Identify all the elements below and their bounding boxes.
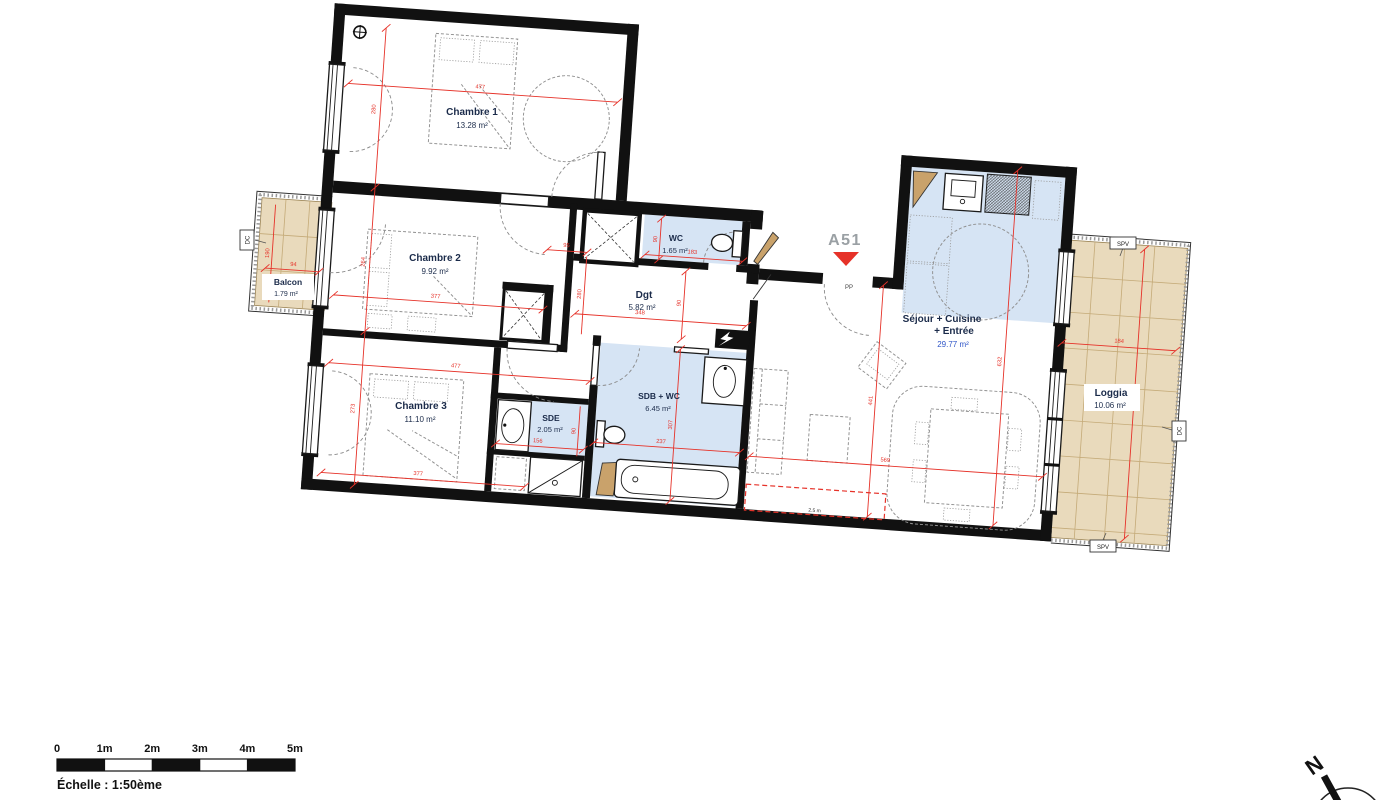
scale-tick-0: 0: [54, 743, 60, 755]
dim-sejour-h-left: 441: [868, 396, 875, 406]
dining-table: [909, 395, 1023, 525]
unit-label: A51: [828, 232, 862, 249]
sdb-bathtub: [614, 459, 740, 506]
dim-sde-h: 90: [571, 428, 577, 435]
dining-zone: [885, 384, 1042, 532]
compass-north-label: N: [1301, 751, 1328, 781]
area-sejour: 29.77 m²: [937, 340, 969, 349]
armchair: [858, 342, 906, 389]
area-chambre3: 11.10 m²: [405, 415, 436, 424]
dim-ch3-w-top: 477: [451, 363, 461, 370]
turning-zone-label: 2.5 m: [808, 508, 821, 515]
label-sejour-line2: + Entrée: [934, 326, 974, 337]
area-sdb: 6.45 m²: [645, 404, 671, 413]
dim-sejour-h-right: 632: [997, 357, 1004, 367]
svg-text:SPV: SPV: [1097, 545, 1109, 551]
circle-zone-ch1: [520, 73, 612, 165]
label-chambre2: Chambre 2: [409, 253, 461, 264]
door-chambre3: [504, 341, 558, 401]
dim-ch2-w: 377: [431, 294, 441, 301]
area-dgt: 5.82 m²: [628, 303, 655, 312]
door-chambre2: [497, 193, 549, 254]
label-sde: SDE: [542, 413, 560, 423]
compass-circle: [1312, 788, 1379, 800]
label-chambre1: Chambre 1: [446, 107, 498, 118]
dim-ch3-h: 273: [350, 404, 357, 414]
dim-ch1-h: 280: [371, 104, 378, 114]
closet: [501, 289, 546, 342]
svg-text:SPV: SPV: [1117, 242, 1129, 248]
survey-point-icon: [352, 25, 367, 40]
stove: [985, 174, 1032, 215]
label-sejour: Séjour + Cuisine: [903, 314, 982, 325]
dim-ch1-w: 477: [475, 84, 485, 91]
dim-sdb-w: 237: [656, 439, 666, 446]
scale-tick-2: 2m: [144, 743, 160, 755]
window-chambre1: [322, 61, 345, 154]
dim-wc-h: 90: [653, 236, 659, 243]
area-chambre2: 9.92 m²: [421, 267, 448, 276]
label-loggia: Loggia: [1095, 388, 1128, 399]
dim-balcon-w: 94: [290, 262, 298, 268]
scale-caption: Échelle : 1:50ème: [57, 777, 162, 792]
floorplan-canvas: 2.5 m 280 264 273 477 377 477 377 183 90…: [0, 0, 1379, 800]
entrance-door-label: PP: [845, 285, 853, 291]
bed-chambre2: [361, 229, 478, 334]
unit-marker: A51 PP: [828, 232, 862, 291]
label-sdb: SDB + WC: [638, 391, 680, 401]
label-chambre3: Chambre 3: [395, 401, 447, 412]
area-loggia: 10.06 m²: [1094, 401, 1126, 410]
dim-sejour-w: 569: [880, 457, 890, 464]
sde-shower: [528, 457, 582, 497]
dim-hall-w: 95: [563, 243, 570, 249]
scale-tick-3: 3m: [192, 743, 208, 755]
dim-loggia-w: 184: [1114, 338, 1125, 345]
door-chambre1: [552, 149, 605, 200]
area-sde: 2.05 m²: [537, 425, 563, 434]
dim-balcon-h: 190: [265, 248, 272, 258]
balcony-door-swing: [330, 221, 386, 277]
unit-arrow-icon: [833, 252, 859, 266]
coffee-table: [807, 414, 850, 463]
dim-dgt-h: 90: [677, 300, 683, 307]
scale-tick-5: 5m: [287, 743, 303, 755]
electrical-panel: [715, 329, 750, 350]
scale-tick-1: 1m: [97, 743, 113, 755]
kitchen-floor: [902, 167, 1066, 323]
window-chambre3: [301, 362, 325, 457]
floorplan-page: 2.5 m 280 264 273 477 377 477 377 183 90…: [0, 0, 1379, 800]
north-compass: N: [1301, 751, 1379, 800]
label-dgt: Dgt: [636, 290, 653, 301]
dim-hall-h: 280: [577, 289, 584, 299]
svg-text:DC: DC: [246, 235, 252, 244]
floor-plan: 2.5 m 280 264 273 477 377 477 377 183 90…: [236, 0, 1204, 551]
dim-sde-w: 156: [533, 438, 543, 445]
svg-text:DC: DC: [1178, 426, 1184, 435]
scale-tick-4: 4m: [239, 743, 255, 755]
area-wc: 1.65 m²: [662, 246, 688, 255]
technical-duct: [581, 210, 639, 265]
door-entrance-pp: [821, 284, 872, 335]
label-wc: WC: [669, 233, 683, 243]
dim-sdb-h: 307: [668, 420, 675, 430]
label-balcon: Balcon: [274, 277, 302, 287]
bed-chambre1: [428, 33, 517, 148]
dim-ch2-h: 264: [360, 256, 367, 267]
scale-bar: 0 1m 2m 3m 4m 5m Échelle : 1:50ème: [54, 743, 303, 792]
dim-wc-w: 183: [687, 249, 697, 256]
dim-ch3-w-bot: 377: [413, 471, 423, 478]
area-balcon: 1.79 m²: [274, 291, 298, 298]
area-chambre1: 13.28 m²: [456, 121, 488, 130]
sdb-sink: [702, 357, 747, 406]
bed-chambre3: [363, 374, 464, 482]
